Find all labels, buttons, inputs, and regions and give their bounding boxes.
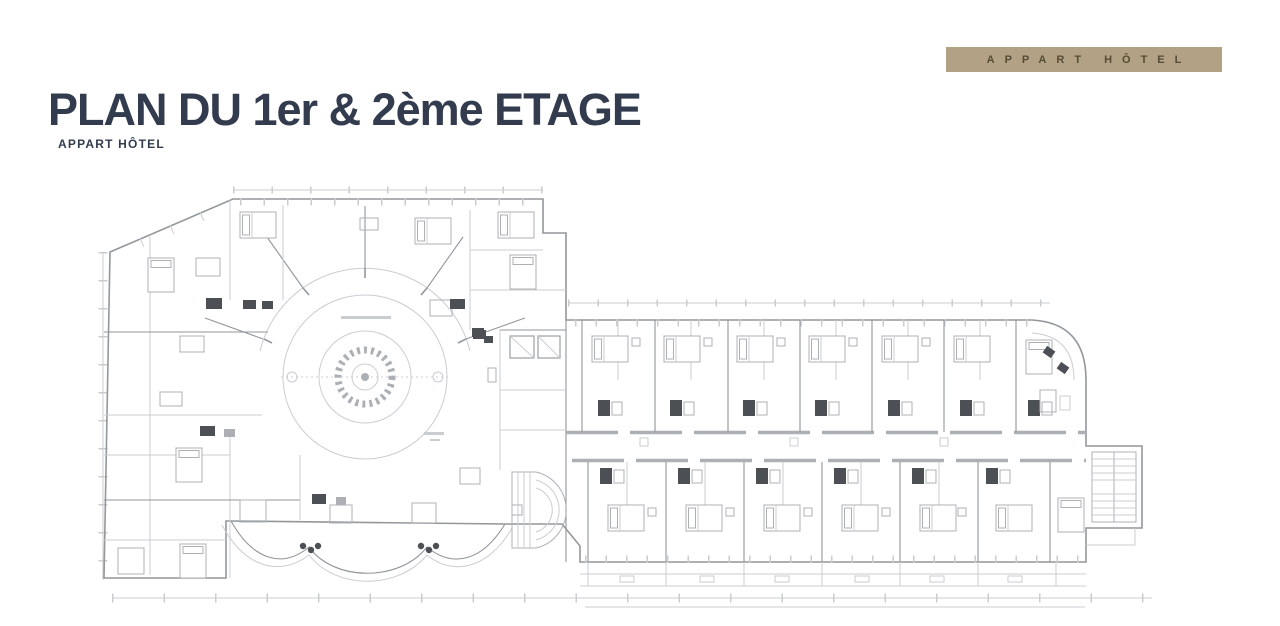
bed [608,505,644,531]
bath-pod [912,468,936,484]
corridor [566,433,1086,461]
bed [996,505,1032,531]
right-stair-block [1086,452,1136,545]
floor-plan [0,0,1280,626]
bed [415,218,451,244]
bed [764,505,800,531]
rooms-bottom-row [588,462,1084,562]
bath-pod [670,400,694,416]
bed [842,505,878,531]
left-wing-partitions [104,200,566,578]
bed [954,336,990,362]
bath-pod [600,468,624,484]
bath-pod [678,468,702,484]
bed [686,505,722,531]
bath-pod [743,400,767,416]
left-wing-bath-pods [200,298,493,505]
bed [1026,340,1052,374]
bed [592,336,628,362]
dimension-lines [103,190,1152,607]
rooms-top-row [582,320,1052,432]
bath-pod [598,400,622,416]
bed [510,255,536,289]
bath-pod [834,468,858,484]
right-wing [566,320,1136,586]
bath-pod [986,468,1010,484]
balcony-curves [222,521,512,581]
page: APPART HÔTEL PLAN DU 1er & 2ème ETAGE AP… [0,0,1280,626]
bed [737,336,773,362]
bath-pod [888,400,912,416]
bed [664,336,700,362]
bed [148,258,174,292]
bed [809,336,845,362]
bed [180,544,206,578]
bed [240,212,276,238]
bed [176,448,202,482]
curved-staircase [512,472,566,548]
bath-pod [960,400,984,416]
bed [1058,498,1084,532]
bed [498,212,534,238]
bed [920,505,956,531]
connector-stairwell [473,330,566,548]
balcony-strip [580,562,1086,586]
bath-pod [756,468,780,484]
bed [882,336,918,362]
bath-pod [815,400,839,416]
